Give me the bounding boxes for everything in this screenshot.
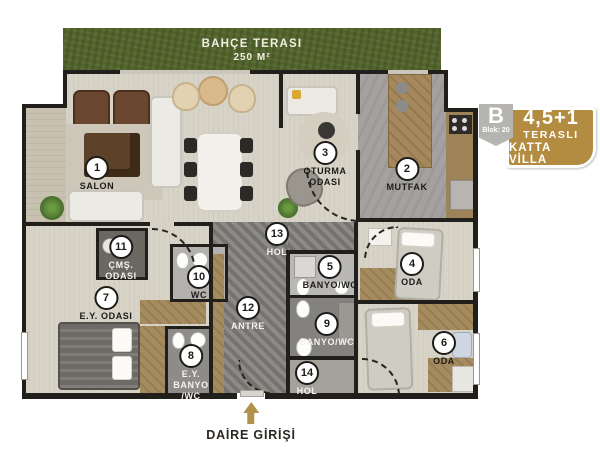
stove-burner bbox=[462, 126, 467, 131]
room-name: MUTFAK bbox=[386, 182, 427, 193]
door-opening bbox=[150, 222, 174, 226]
wall bbox=[170, 244, 173, 302]
wall bbox=[209, 222, 213, 398]
terrace-chair bbox=[228, 84, 256, 113]
room-label-hol-14: 14 HOL bbox=[295, 361, 319, 397]
wall bbox=[96, 228, 148, 231]
room-label-ey-banyo: 8 E.Y. BANYO /WC bbox=[173, 344, 209, 401]
window bbox=[473, 248, 480, 292]
block-tab: B Blok: 20 bbox=[479, 104, 513, 146]
wall bbox=[145, 228, 148, 280]
room-name: ANTRE bbox=[231, 321, 265, 332]
room-name: WC bbox=[187, 290, 211, 301]
room-label-ey-odasi: 7 E.Y. ODASI bbox=[79, 286, 132, 322]
room-name: OTURMA ODASI bbox=[303, 166, 346, 188]
wood-patch-ey-odasi bbox=[140, 300, 206, 324]
stove-burner bbox=[452, 126, 457, 131]
room-number: 1 bbox=[85, 156, 109, 180]
room-label-oda-4: 4 ODA bbox=[400, 252, 424, 288]
wood-patch-ey-banyo-left bbox=[140, 326, 165, 394]
room-number: 4 bbox=[400, 252, 424, 276]
stove-burner bbox=[452, 118, 457, 123]
pillow bbox=[401, 231, 436, 248]
room-number: 12 bbox=[236, 296, 260, 320]
room-number: 2 bbox=[395, 157, 419, 181]
wall bbox=[356, 150, 360, 222]
room-label-mutfak: 2 MUTFAK bbox=[386, 157, 427, 193]
room-number: 6 bbox=[432, 331, 456, 355]
dining-chair bbox=[184, 186, 197, 201]
side-table bbox=[318, 122, 335, 139]
room-label-banyo-5: 5 BANYO/WC bbox=[303, 255, 358, 291]
unit-type-badge: 4,5+1 TERASLI KATTA VİLLA B Blok: 20 bbox=[479, 104, 599, 174]
wall bbox=[444, 70, 448, 111]
room-number: 14 bbox=[295, 361, 319, 385]
unit-subtitle-1: TERASLI bbox=[523, 130, 578, 142]
island-sink bbox=[396, 100, 408, 112]
room-label-banyo-9: 9 BANYO/WC bbox=[300, 312, 355, 348]
entrance-arrow-icon bbox=[243, 402, 259, 413]
room-label-wc: 10 WC bbox=[187, 265, 211, 301]
wall bbox=[286, 250, 290, 398]
dining-chair bbox=[184, 162, 197, 177]
entrance-label: DAİRE GİRİŞİ bbox=[206, 428, 295, 442]
window bbox=[473, 333, 480, 385]
room-label-hol-13: 13 HOL bbox=[265, 222, 289, 258]
pillow bbox=[112, 356, 132, 380]
glass-door bbox=[120, 70, 250, 74]
entrance-door-leaf bbox=[240, 390, 264, 397]
terrace-chair bbox=[172, 82, 200, 111]
dining-table bbox=[196, 132, 244, 212]
kitchen-sink bbox=[450, 180, 474, 210]
wall bbox=[286, 356, 358, 360]
glass-door bbox=[388, 70, 428, 74]
room-number: 5 bbox=[318, 255, 342, 279]
island-sink bbox=[396, 82, 408, 94]
wall bbox=[358, 300, 478, 304]
room-number: 10 bbox=[187, 265, 211, 289]
dining-chair bbox=[240, 138, 253, 153]
room-label-oda-6: 6 ODA bbox=[432, 331, 456, 367]
wall bbox=[279, 70, 283, 128]
room-number: 9 bbox=[315, 312, 339, 336]
sofa bbox=[68, 190, 144, 222]
room-name: HOL bbox=[265, 247, 289, 258]
pillow bbox=[112, 328, 132, 352]
room-label-antre: 12 ANTRE bbox=[231, 296, 265, 332]
plant bbox=[40, 196, 64, 220]
room-label-salon: 1 SALON bbox=[80, 156, 115, 192]
unit-type: 4,5+1 bbox=[523, 108, 579, 128]
room-number: 8 bbox=[179, 344, 203, 368]
dining-chair bbox=[184, 138, 197, 153]
room-name: ODA bbox=[432, 356, 456, 367]
block-letter: B bbox=[479, 104, 513, 128]
room-number: 7 bbox=[94, 286, 118, 310]
room-number: 3 bbox=[313, 141, 337, 165]
wall bbox=[22, 104, 67, 108]
room-name: ÇMŞ. ODASI bbox=[105, 260, 137, 282]
wall bbox=[165, 326, 213, 329]
wall bbox=[444, 108, 478, 112]
kitchen-island bbox=[388, 74, 432, 168]
wall bbox=[165, 326, 168, 396]
entrance-arrow-stem bbox=[247, 413, 254, 424]
wall bbox=[63, 70, 67, 108]
room-name: E.Y. ODASI bbox=[79, 311, 132, 322]
pillow bbox=[292, 90, 301, 99]
garden-area: 250 M² bbox=[233, 52, 270, 63]
wall bbox=[96, 228, 99, 280]
window bbox=[21, 332, 28, 380]
stove-burner bbox=[462, 118, 467, 123]
pillow bbox=[371, 311, 406, 327]
wall bbox=[356, 218, 478, 222]
room-name: BANYO/WC bbox=[300, 337, 355, 348]
room-number: 11 bbox=[109, 235, 133, 259]
room-label-oturma-odasi: 3 OTURMA ODASI bbox=[303, 141, 346, 188]
dining-chair bbox=[240, 186, 253, 201]
wall bbox=[286, 250, 358, 254]
wall bbox=[225, 244, 228, 302]
room-name: ODA bbox=[400, 277, 424, 288]
wall bbox=[286, 295, 358, 298]
wall bbox=[354, 222, 358, 398]
wall bbox=[22, 222, 212, 226]
wall bbox=[170, 244, 228, 247]
room-label-cms-odasi: 11 ÇMŞ. ODASI bbox=[105, 235, 137, 282]
block-number: Blok: 20 bbox=[479, 127, 513, 134]
room-name: SALON bbox=[80, 181, 115, 192]
room-number: 13 bbox=[265, 222, 289, 246]
wood-patch-oda6-top bbox=[418, 304, 476, 330]
sofa bbox=[150, 96, 182, 188]
dining-chair bbox=[240, 162, 253, 177]
room-name: E.Y. BANYO /WC bbox=[173, 369, 209, 401]
terrace-table bbox=[198, 76, 228, 106]
entrance: DAİRE GİRİŞİ bbox=[206, 402, 295, 442]
wall bbox=[356, 70, 360, 114]
room-name: HOL bbox=[295, 386, 319, 397]
unit-subtitle-2: KATTA VİLLA bbox=[509, 142, 593, 167]
room-name: BANYO/WC bbox=[303, 280, 358, 291]
badge-gold: 4,5+1 TERASLI KATTA VİLLA bbox=[509, 110, 593, 165]
garden-title: BAHÇE TERASI bbox=[202, 38, 303, 50]
floor-plan: BAHÇE TERASI 250 M² 1 SALON 2 MUTFAK 3 O… bbox=[0, 0, 600, 450]
garden-terrace: BAHÇE TERASI 250 M² bbox=[63, 28, 441, 72]
